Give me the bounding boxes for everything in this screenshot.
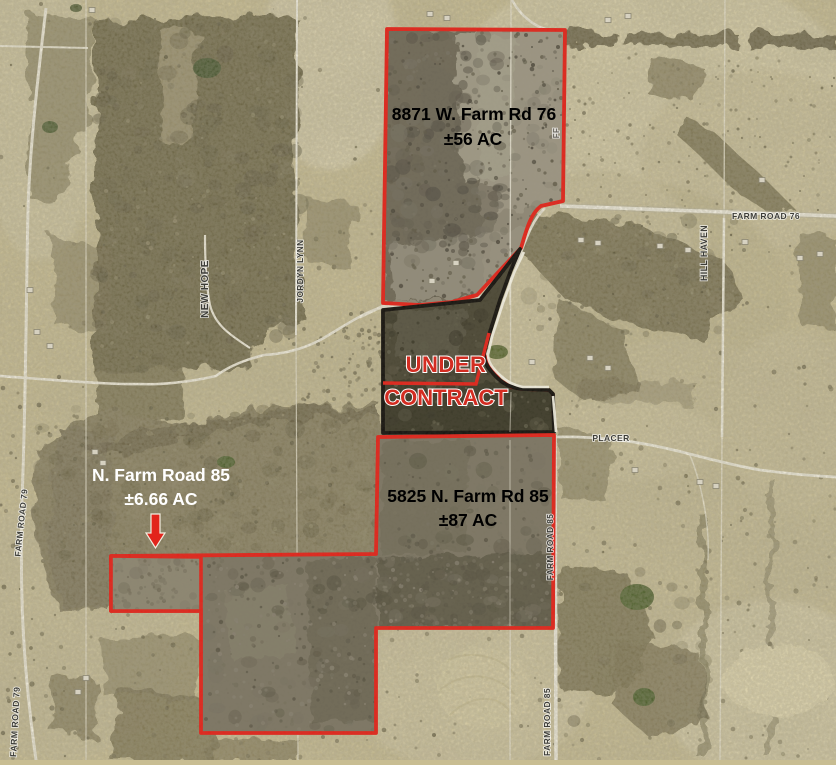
svg-text:HILL HAVEN: HILL HAVEN (699, 225, 709, 281)
svg-text:8871 W. Farm Rd 76: 8871 W. Farm Rd 76 (392, 104, 557, 124)
svg-text:UNDER: UNDER (406, 352, 487, 377)
svg-text:±56 AC: ±56 AC (444, 129, 503, 149)
svg-text:CONTRACT: CONTRACT (384, 385, 508, 410)
svg-text:JORDYN LYNN: JORDYN LYNN (295, 239, 305, 302)
svg-text:NEW HOPE: NEW HOPE (200, 260, 211, 318)
svg-text:±6.66 AC: ±6.66 AC (124, 489, 198, 509)
svg-text:PLACER: PLACER (592, 433, 629, 443)
svg-text:FARM ROAD 76: FARM ROAD 76 (732, 211, 800, 221)
svg-text:N. Farm Road 85: N. Farm Road 85 (92, 465, 230, 485)
svg-text:FF: FF (552, 128, 561, 139)
svg-text:FARM ROAD 85: FARM ROAD 85 (545, 514, 555, 581)
svg-text:5825 N. Farm Rd 85: 5825 N. Farm Rd 85 (387, 486, 549, 506)
svg-text:±87 AC: ±87 AC (439, 510, 498, 530)
svg-text:FARM ROAD 85: FARM ROAD 85 (542, 688, 552, 756)
